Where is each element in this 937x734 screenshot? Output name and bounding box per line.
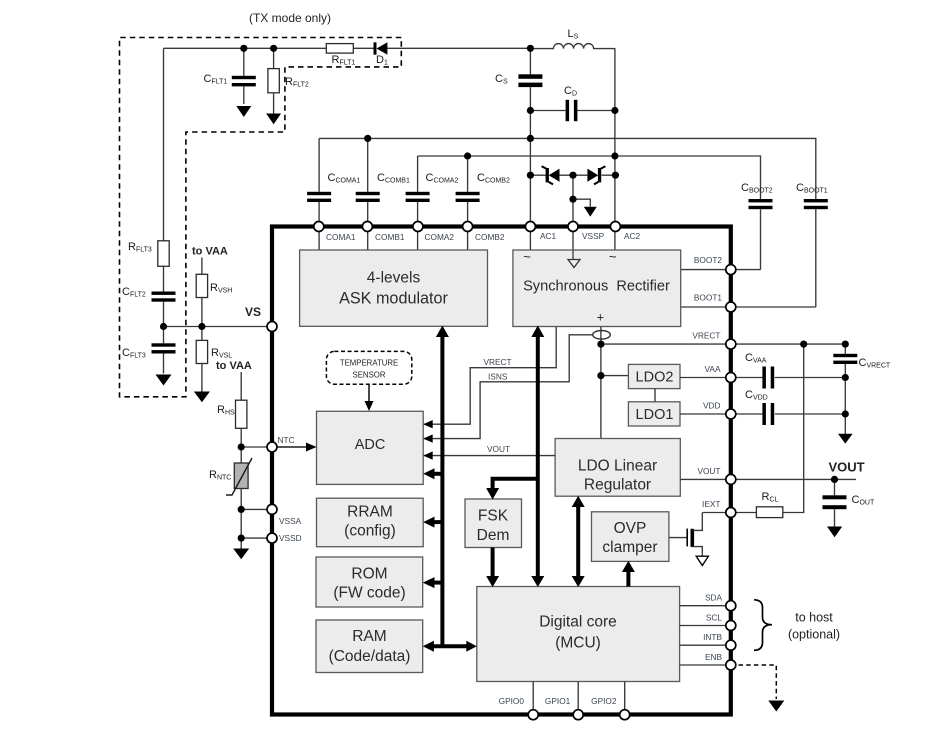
svg-text:INTB: INTB (703, 632, 722, 642)
svg-text:+: + (597, 310, 605, 325)
svg-text:COMB1: COMB1 (375, 232, 405, 242)
svg-text:(Code/data): (Code/data) (329, 648, 411, 665)
svg-text:VOUT: VOUT (697, 466, 720, 476)
svg-text:GPIO1: GPIO1 (545, 696, 571, 706)
svg-text:COMA1: COMA1 (326, 232, 356, 242)
svg-text:Digital core: Digital core (539, 614, 617, 631)
svg-text:RRAM: RRAM (347, 504, 393, 521)
svg-text:TEMPERATURE: TEMPERATURE (340, 359, 398, 368)
svg-text:VSSP: VSSP (582, 231, 605, 241)
svg-text:ISNS: ISNS (488, 372, 508, 382)
svg-text:(optional): (optional) (788, 628, 840, 642)
svg-text:SDA: SDA (705, 593, 723, 603)
svg-text:ROM: ROM (351, 566, 387, 583)
svg-text:to VAA: to VAA (216, 360, 252, 372)
svg-text:VRECT: VRECT (692, 331, 720, 341)
svg-text:NTC: NTC (278, 435, 295, 445)
svg-text:Dem: Dem (477, 527, 510, 544)
svg-text:(TX mode only): (TX mode only) (249, 11, 331, 25)
svg-text:~: ~ (523, 249, 531, 264)
svg-text:VRECT: VRECT (484, 357, 512, 367)
svg-text:ADC: ADC (355, 437, 386, 453)
svg-text:VSSD: VSSD (279, 533, 302, 543)
svg-text:VOUT: VOUT (487, 444, 510, 454)
svg-text:FSK: FSK (478, 508, 509, 525)
svg-text:VAA: VAA (705, 364, 721, 374)
svg-text:(FW code): (FW code) (333, 585, 405, 602)
svg-text:Regulator: Regulator (584, 477, 651, 494)
svg-text:GPIO0: GPIO0 (499, 696, 525, 706)
svg-text:(MCU): (MCU) (555, 635, 601, 652)
svg-text:SENSOR: SENSOR (353, 371, 386, 380)
svg-text:4-levels: 4-levels (367, 270, 421, 287)
svg-text:ASK modulator: ASK modulator (339, 290, 448, 308)
svg-text:LDO1: LDO1 (636, 407, 674, 423)
svg-text:SCL: SCL (706, 613, 723, 623)
svg-text:AC1: AC1 (540, 231, 557, 241)
svg-text:IEXT: IEXT (702, 499, 720, 509)
svg-text:to VAA: to VAA (192, 246, 228, 258)
svg-text:VDD: VDD (703, 401, 721, 411)
svg-text:clamper: clamper (602, 539, 657, 556)
svg-text:VSSA: VSSA (279, 516, 302, 526)
svg-text:COMB2: COMB2 (475, 232, 505, 242)
svg-text:(config): (config) (344, 523, 396, 540)
svg-text:OVP: OVP (614, 520, 647, 537)
svg-text:ENB: ENB (705, 652, 723, 662)
svg-text:to host: to host (795, 611, 833, 625)
svg-text:GPIO2: GPIO2 (591, 696, 617, 706)
svg-text:RAM: RAM (352, 628, 386, 645)
svg-text:BOOT2: BOOT2 (694, 255, 723, 265)
svg-text:LDO2: LDO2 (636, 369, 674, 385)
svg-text:VS: VS (245, 305, 261, 319)
svg-text:VOUT: VOUT (829, 460, 865, 475)
svg-text:~: ~ (609, 249, 617, 264)
svg-text:BOOT1: BOOT1 (694, 293, 723, 303)
svg-text:LDO Linear: LDO Linear (578, 458, 657, 475)
svg-text:AC2: AC2 (624, 231, 641, 241)
svg-text:COMA2: COMA2 (425, 232, 455, 242)
svg-text:Synchronous Rectifier: Synchronous Rectifier (523, 279, 670, 295)
